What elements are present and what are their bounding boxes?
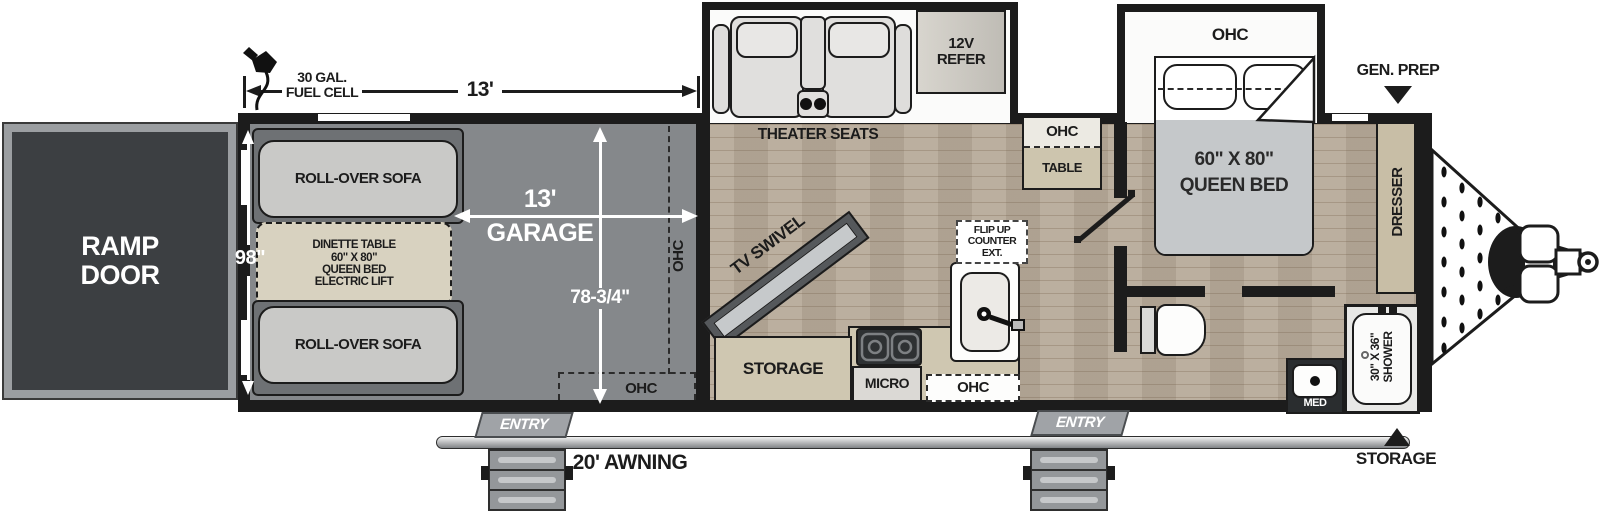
- cupholder-icon: [814, 98, 826, 110]
- entry-steps-right: [1030, 449, 1108, 515]
- length-dim-label: 13': [467, 79, 494, 102]
- bath-wall: [1114, 246, 1127, 352]
- microwave-label: MICRO: [865, 376, 909, 391]
- dinette-label: 60" X 80": [331, 252, 377, 264]
- width-dim-label: 98": [222, 248, 278, 270]
- entry-label: ENTRY: [498, 417, 550, 433]
- garage-dim-label: GARAGE: [458, 220, 622, 247]
- garage-dim-label: 13': [480, 186, 600, 213]
- dinette-label: DINETTE TABLE: [312, 239, 395, 251]
- theater-armrest: [712, 24, 730, 114]
- roll-over-sofa-bottom: ROLL-OVER SOFA: [258, 306, 458, 384]
- bath-wall: [1127, 286, 1205, 297]
- stove-cooktop: [856, 328, 922, 366]
- depth-arrow-up-icon: [593, 127, 607, 142]
- pillow: [1243, 64, 1307, 110]
- fuel-pump-icon: [243, 47, 277, 110]
- depth-dim-line: [599, 140, 602, 390]
- roll-over-sofa-top: ROLL-OVER SOFA: [258, 140, 458, 218]
- awning-rail: [436, 436, 1410, 449]
- floorplan: RAMP DOOR 30 GAL. FUEL CELL 13' 98" ROLL…: [0, 0, 1600, 516]
- refer-label: REFER: [937, 52, 985, 68]
- dresser-label: DRESSER: [1390, 142, 1406, 262]
- shower-size-label: 30" X 36": [1369, 302, 1382, 412]
- toilet-tank: [1140, 306, 1156, 354]
- gen-prep-label: GEN. PREP: [1330, 62, 1466, 79]
- refer-label: 12V: [948, 36, 973, 52]
- sofa-label: ROLL-OVER SOFA: [295, 171, 421, 187]
- table: TABLE: [1024, 148, 1100, 188]
- entry-door-left: ENTRY: [474, 412, 573, 438]
- sink-basin: [960, 272, 1010, 352]
- bed-size-label: 60" X 80": [1154, 150, 1314, 171]
- kitchen-ohc: OHC: [926, 374, 1020, 402]
- pillow: [1163, 64, 1237, 110]
- step-bracket: [1107, 466, 1115, 480]
- entry-door-right: ENTRY: [1030, 410, 1129, 436]
- sofa-label: ROLL-OVER SOFA: [295, 337, 421, 353]
- theater-armrest: [894, 24, 912, 114]
- ramp-door-label: DOOR: [81, 261, 160, 290]
- kitchen-storage: STORAGE: [714, 336, 852, 402]
- fuel-cell-label: 30 GAL.: [297, 70, 346, 85]
- front-storage-label: STORAGE: [1336, 450, 1456, 468]
- garage-partition-wall: [696, 113, 710, 412]
- refrigerator: 12V REFER: [916, 10, 1006, 94]
- bed-label: QUEEN BED: [1154, 176, 1314, 197]
- dinette-electric-lift-bed: DINETTE TABLE 60" X 80" QUEEN BED ELECTR…: [256, 222, 452, 306]
- med-label: MED: [1286, 398, 1344, 410]
- window-slot: [318, 114, 410, 121]
- bath-wall: [1242, 286, 1335, 297]
- width-arrow-down-icon: [242, 381, 254, 395]
- ramp-door-label: RAMP: [81, 232, 160, 261]
- ramp-door: RAMP DOOR: [12, 132, 228, 390]
- faucet-icon: [1310, 376, 1320, 386]
- theater-console: [800, 16, 826, 90]
- window-slot: [1332, 114, 1368, 121]
- table-label: TABLE: [1042, 161, 1082, 175]
- front-storage-arrow-icon: [1384, 428, 1410, 446]
- dim-arrow-left-icon: [246, 85, 261, 97]
- garage-ohc-side-label: OHC: [671, 216, 687, 296]
- fuel-cell-note: 30 GAL. FUEL CELL: [282, 58, 362, 112]
- door-handle-icon: [1128, 190, 1135, 197]
- dim-arrow-right-icon: [682, 85, 697, 97]
- entry-label: ENTRY: [1054, 415, 1106, 431]
- fuel-cell-label: FUEL CELL: [286, 85, 358, 100]
- kitchen-storage-label: STORAGE: [743, 360, 823, 378]
- bedroom-ohc-line: [1158, 88, 1310, 90]
- flip-up-label: EXT.: [982, 248, 1002, 259]
- step-bracket: [481, 466, 489, 480]
- flip-up-counter-note: FLIP UP COUNTER EXT.: [956, 220, 1028, 264]
- door-handle-icon: [1074, 236, 1081, 243]
- garage-ohc-rear-label: OHC: [586, 381, 696, 397]
- theater-seat-back: [736, 22, 798, 58]
- width-arrow-up-icon: [242, 130, 254, 144]
- width-dim-line: [247, 143, 250, 245]
- length-dim: 13': [458, 74, 502, 106]
- ohc-cabinet: OHC: [1024, 118, 1100, 148]
- microwave: MICRO: [852, 366, 922, 402]
- width-dim-line: [247, 276, 250, 380]
- dim-tick: [697, 76, 700, 108]
- theater-seats-label: THEATER SEATS: [728, 127, 908, 144]
- theater-seat-back: [828, 22, 890, 58]
- front-hitch: [1432, 150, 1597, 364]
- kitchen-ohc-label: OHC: [957, 380, 989, 396]
- gen-prep-arrow-icon: [1384, 86, 1412, 104]
- ohc-label: OHC: [1046, 124, 1078, 140]
- depth-dim-label: 78-3/4": [544, 288, 656, 309]
- toilet: [1156, 304, 1206, 356]
- cupholder-icon: [800, 98, 812, 110]
- awning-label: 20' AWNING: [530, 452, 730, 475]
- dinette-label: ELECTRIC LIFT: [315, 276, 393, 288]
- ohc-table-unit: OHC TABLE: [1022, 116, 1102, 190]
- step-bracket: [1023, 466, 1031, 480]
- flip-up-label: COUNTER: [968, 236, 1016, 247]
- bath-wall: [1114, 122, 1127, 198]
- garage-dim-line: [470, 215, 684, 218]
- shower-label: SHOWER: [1382, 302, 1395, 412]
- dinette-label: QUEEN BED: [322, 264, 386, 276]
- bedroom-ohc-label: OHC: [1180, 26, 1280, 44]
